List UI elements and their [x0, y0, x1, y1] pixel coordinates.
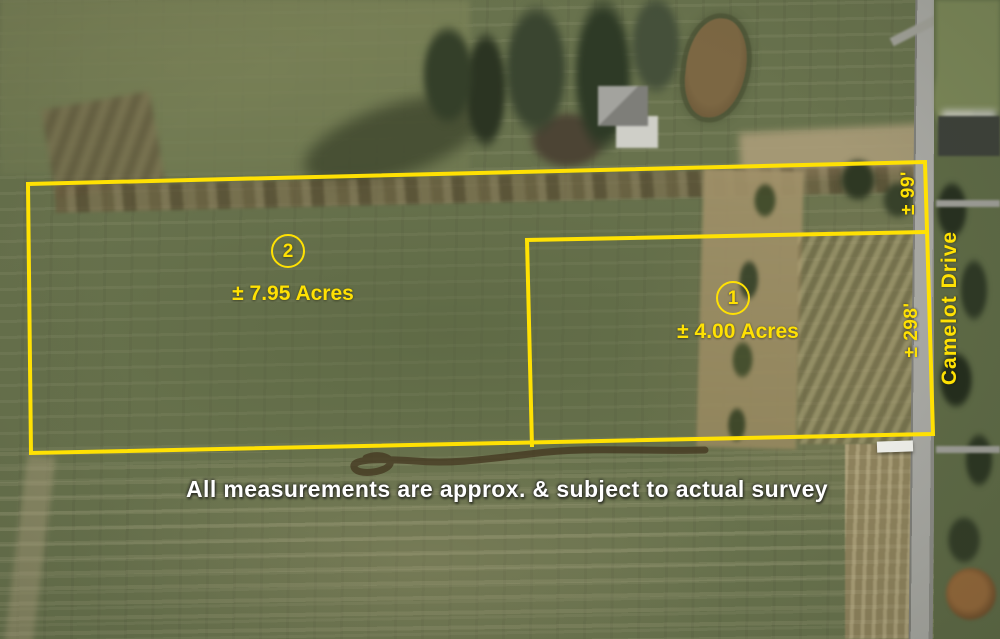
- parcel-1-number-badge: 1: [716, 281, 750, 315]
- aerial-parcel-map: 2 ± 7.95 Acres 1 ± 4.00 Acres ± 99' ± 29…: [0, 0, 1000, 639]
- dirt-track: [354, 450, 705, 473]
- parcel-2-number-badge: 2: [271, 234, 305, 268]
- parcel-1-number: 1: [728, 289, 739, 308]
- disclaimer-text: All measurements are approx. & subject t…: [186, 476, 828, 503]
- road-name-label: Camelot Drive: [938, 218, 962, 398]
- frontage-99-label: ± 99': [898, 148, 920, 238]
- parcel-1-acreage-label: ± 4.00 Acres: [633, 320, 843, 344]
- outer-boundary-line: [28, 162, 933, 453]
- survey-annotation-overlay: [0, 0, 1000, 639]
- frontage-298-label: ± 298': [901, 275, 923, 385]
- parcel-2-number: 2: [283, 242, 294, 261]
- parcel-2-acreage-label: ± 7.95 Acres: [188, 282, 398, 306]
